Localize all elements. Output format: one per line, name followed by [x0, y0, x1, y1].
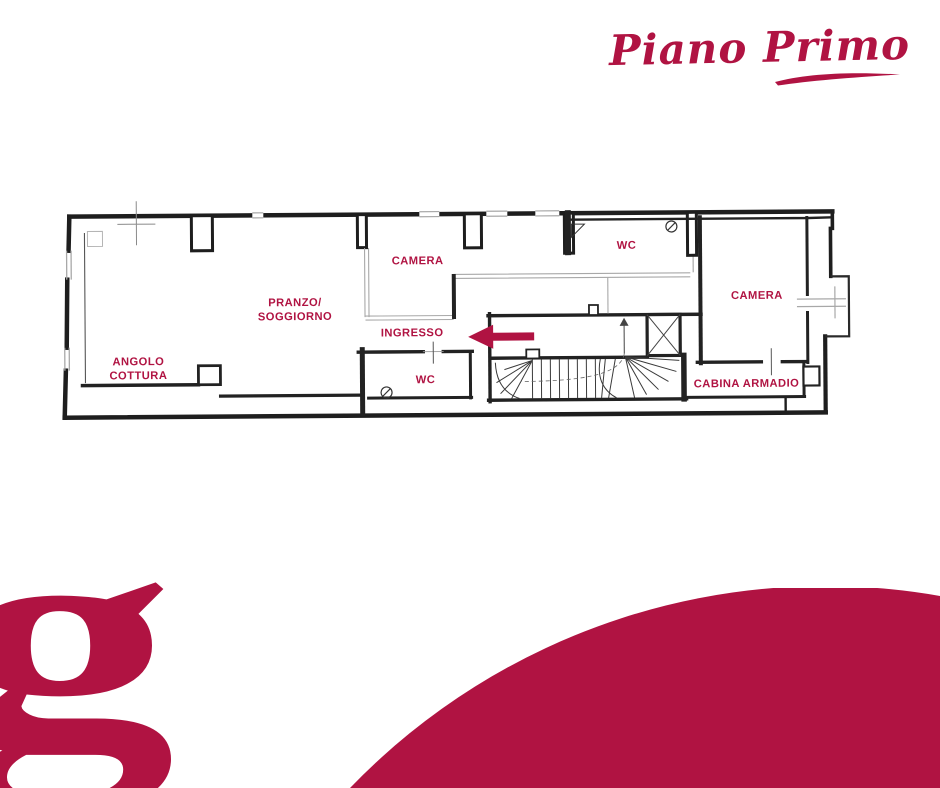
floor-plan: ANGOLO COTTURA PRANZO/ SOGGIORNO CAMERA …: [51, 190, 853, 436]
entrance-arrow-icon: [468, 324, 534, 348]
room-label-angolo-cottura-1: ANGOLO: [112, 356, 164, 368]
room-label-camera-2: CAMERA: [731, 290, 783, 302]
brand-logo-letter: g: [0, 538, 175, 788]
room-label-pranzo-2: SOGGIORNO: [258, 311, 332, 324]
room-label-ingresso: INGRESSO: [381, 327, 444, 339]
title-underline-swash-icon: [772, 71, 904, 86]
survey-cross-icon: [117, 201, 155, 245]
balcony: [797, 276, 849, 336]
elevator-shaft: [647, 314, 680, 355]
header: Piano Primo: [609, 26, 910, 86]
corner-curve-decoration: [320, 588, 940, 788]
room-label-cabina-armadio: CABINA ARMADIO: [694, 378, 800, 391]
brand-logo: g: [0, 538, 230, 788]
page: { "header": { "title": "Piano Primo" }, …: [0, 0, 940, 788]
room-label-pranzo-1: PRANZO/: [268, 297, 322, 309]
room-label-angolo-cottura-2: COTTURA: [109, 370, 167, 382]
room-label-wc-1: WC: [416, 374, 436, 386]
room-label-camera-1: CAMERA: [392, 255, 444, 267]
room-label-wc-2: WC: [617, 240, 637, 252]
windows: [64, 208, 699, 371]
floor-title: Piano Primo: [609, 23, 911, 73]
